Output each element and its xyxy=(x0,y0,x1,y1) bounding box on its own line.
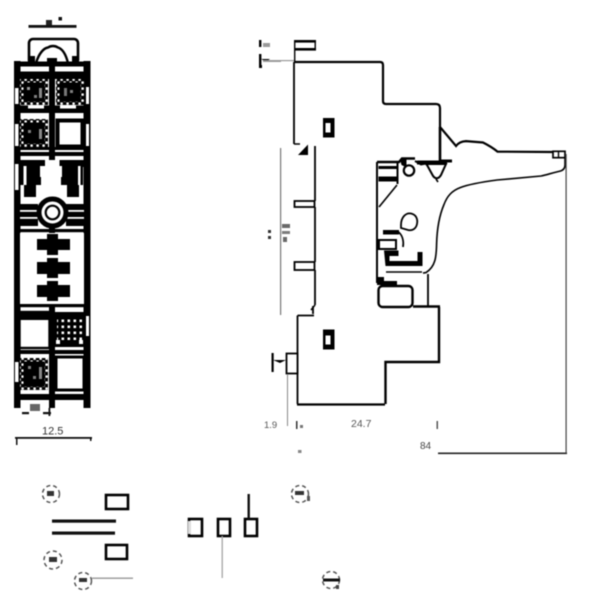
svg-text:24.7: 24.7 xyxy=(351,418,372,430)
svg-text:1.9: 1.9 xyxy=(264,420,277,431)
svg-text:84: 84 xyxy=(420,441,432,452)
svg-text:12.5: 12.5 xyxy=(42,426,63,438)
